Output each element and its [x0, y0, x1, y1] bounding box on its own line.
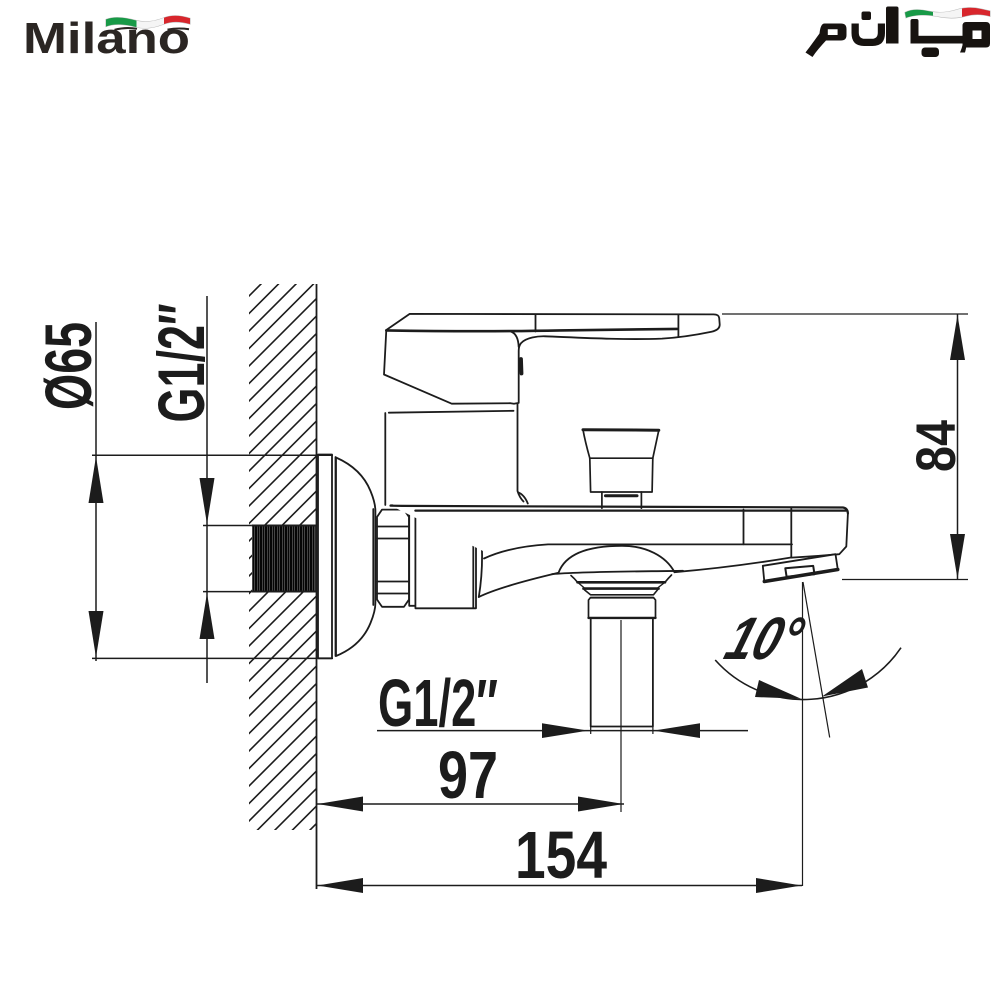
svg-text:97: 97: [438, 738, 498, 813]
svg-text:154: 154: [515, 818, 607, 893]
svg-text:G1/2″: G1/2″: [144, 304, 218, 423]
svg-text:Ø65: Ø65: [31, 322, 105, 410]
svg-text:10°: 10°: [718, 605, 812, 672]
svg-text:G1/2″: G1/2″: [378, 666, 498, 741]
svg-text:84: 84: [904, 420, 967, 472]
